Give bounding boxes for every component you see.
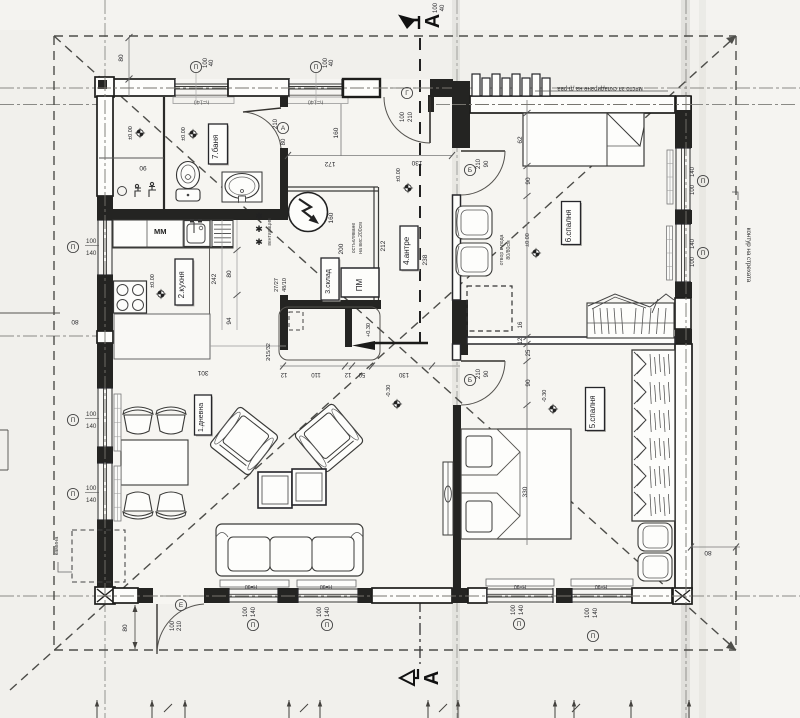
svg-text:48/10: 48/10 [282,278,288,292]
svg-text:140: 140 [519,604,525,615]
svg-text:100: 100 [243,606,249,617]
svg-text:П: П [314,64,319,71]
svg-text:40: 40 [329,59,335,66]
svg-text:П: П [701,250,706,257]
svg-text:±0.00: ±0.00 [181,127,187,141]
svg-text:място за складиране на дърва: място за складиране на дърва [557,85,643,91]
svg-text:A: A [422,14,444,28]
svg-text:140: 140 [325,606,331,617]
svg-text:172: 172 [324,160,335,167]
svg-text:62: 62 [517,136,524,144]
svg-text:94: 94 [226,317,233,325]
svg-text:П: П [325,622,330,629]
svg-text:160: 160 [328,212,335,223]
svg-text:✱: ✱ [255,211,263,221]
svg-text:40: 40 [209,59,215,66]
svg-text:140: 140 [593,607,599,618]
svg-text:A: A [421,671,443,685]
svg-text:П: П [701,178,706,185]
svg-text:140: 140 [251,606,257,617]
svg-text:12: 12 [280,371,287,377]
svg-text:П: П [517,621,522,628]
svg-text:25: 25 [526,349,532,356]
svg-text:212: 212 [380,240,387,251]
svg-text:Н=90: Н=90 [320,583,332,589]
svg-text:П: П [71,491,76,498]
svg-text:Н=90: Н=90 [595,583,607,589]
svg-text:4.антре: 4.антре [402,236,411,265]
svg-text:ПМ: ПМ [355,278,364,291]
svg-text:Н=90: Н=90 [245,583,257,589]
svg-text:27/27: 27/27 [274,278,280,292]
svg-text:✱: ✱ [255,237,263,247]
svg-text:90: 90 [484,160,490,167]
svg-text:210: 210 [408,111,414,122]
svg-text:210: 210 [476,368,482,379]
svg-text:+0.30: +0.30 [366,323,372,337]
svg-text:140: 140 [86,423,97,430]
svg-text:100: 100 [86,485,97,492]
svg-text:отвор в пода: отвор в пода [499,235,505,266]
svg-text:остъкляване: остъкляване [351,223,357,254]
svg-text:100: 100 [317,606,323,617]
svg-text:±0.00: ±0.00 [150,274,156,288]
svg-text:100: 100 [585,607,591,618]
svg-text:Е: Е [179,602,184,609]
svg-text:210: 210 [476,158,482,169]
svg-text:242: 242 [211,273,218,284]
svg-text:90: 90 [139,164,147,171]
svg-text:90: 90 [525,379,532,387]
svg-text:2⁄15/32: 2⁄15/32 [266,343,272,361]
svg-text:±0.00: ±0.00 [128,126,134,140]
svg-text:П: П [194,64,199,71]
svg-text:100: 100 [86,238,97,245]
svg-text:100: 100 [690,256,696,267]
svg-text:6.спалня: 6.спалня [564,209,573,242]
svg-text:210: 210 [273,118,279,129]
svg-text:7.баня: 7.баня [211,135,220,159]
svg-text:330: 330 [522,486,529,497]
svg-text:1.дневна: 1.дневна [198,403,205,432]
svg-text:контур на стрехата: контур на стрехата [745,228,752,283]
svg-text:П: П [591,633,596,640]
svg-text:5.спалня: 5.спалня [588,395,597,428]
svg-text:камина: камина [54,536,60,555]
svg-text:210: 210 [177,620,183,631]
svg-text:на вис.200см: на вис.200см [358,222,364,254]
svg-text:200: 200 [338,243,345,254]
svg-text:Б: Б [468,167,472,174]
svg-text:80: 80 [226,270,233,278]
svg-text:-0.30: -0.30 [542,390,548,403]
svg-text:12: 12 [344,371,351,377]
svg-text:40: 40 [440,4,446,11]
svg-text:Б: Б [468,377,472,384]
svg-text:80: 80 [122,624,129,632]
svg-text:238: 238 [422,254,429,265]
svg-text:100: 100 [400,111,406,122]
svg-text:±0.00: ±0.00 [525,233,531,247]
svg-text:-0.30: -0.30 [386,385,392,398]
svg-text:Г: Г [405,90,409,97]
svg-text:П: П [71,244,76,251]
svg-text:140: 140 [690,238,696,249]
svg-text:140: 140 [86,250,97,257]
svg-text:140: 140 [86,497,97,504]
svg-text:П: П [71,417,76,424]
svg-text:90: 90 [484,370,490,377]
svg-text:80: 80 [118,54,125,62]
svg-text:h=140: h=140 [308,99,323,105]
svg-text:80: 80 [71,318,79,325]
svg-text:П: П [251,622,256,629]
svg-text:140: 140 [690,166,696,177]
svg-text:16: 16 [518,321,524,328]
svg-text:160: 160 [333,127,340,138]
svg-text:2.кухня: 2.кухня [177,271,186,298]
svg-text:301: 301 [197,369,208,376]
svg-text:80/80см: 80/80см [506,240,512,260]
svg-text:✱: ✱ [255,224,263,234]
svg-text:3.склад: 3.склад [325,269,332,294]
svg-text:100: 100 [86,411,97,418]
svg-text:110: 110 [311,371,321,377]
svg-text:±0.00: ±0.00 [396,168,402,182]
svg-text:130: 130 [411,159,422,166]
svg-text:Н=90: Н=90 [514,583,526,589]
svg-text:80: 80 [281,138,287,145]
svg-text:50: 50 [358,371,365,377]
svg-text:100: 100 [511,604,517,615]
svg-text:вентилация: вентилация [267,218,273,246]
svg-text:130: 130 [398,371,409,377]
svg-text:100: 100 [433,2,439,13]
svg-text:100: 100 [170,620,176,631]
svg-text:А: А [281,125,286,132]
svg-text:MM: MM [154,227,167,236]
svg-text:12: 12 [518,337,524,344]
svg-text:100: 100 [690,184,696,195]
svg-text:80: 80 [704,549,712,556]
svg-text:90: 90 [525,177,532,185]
